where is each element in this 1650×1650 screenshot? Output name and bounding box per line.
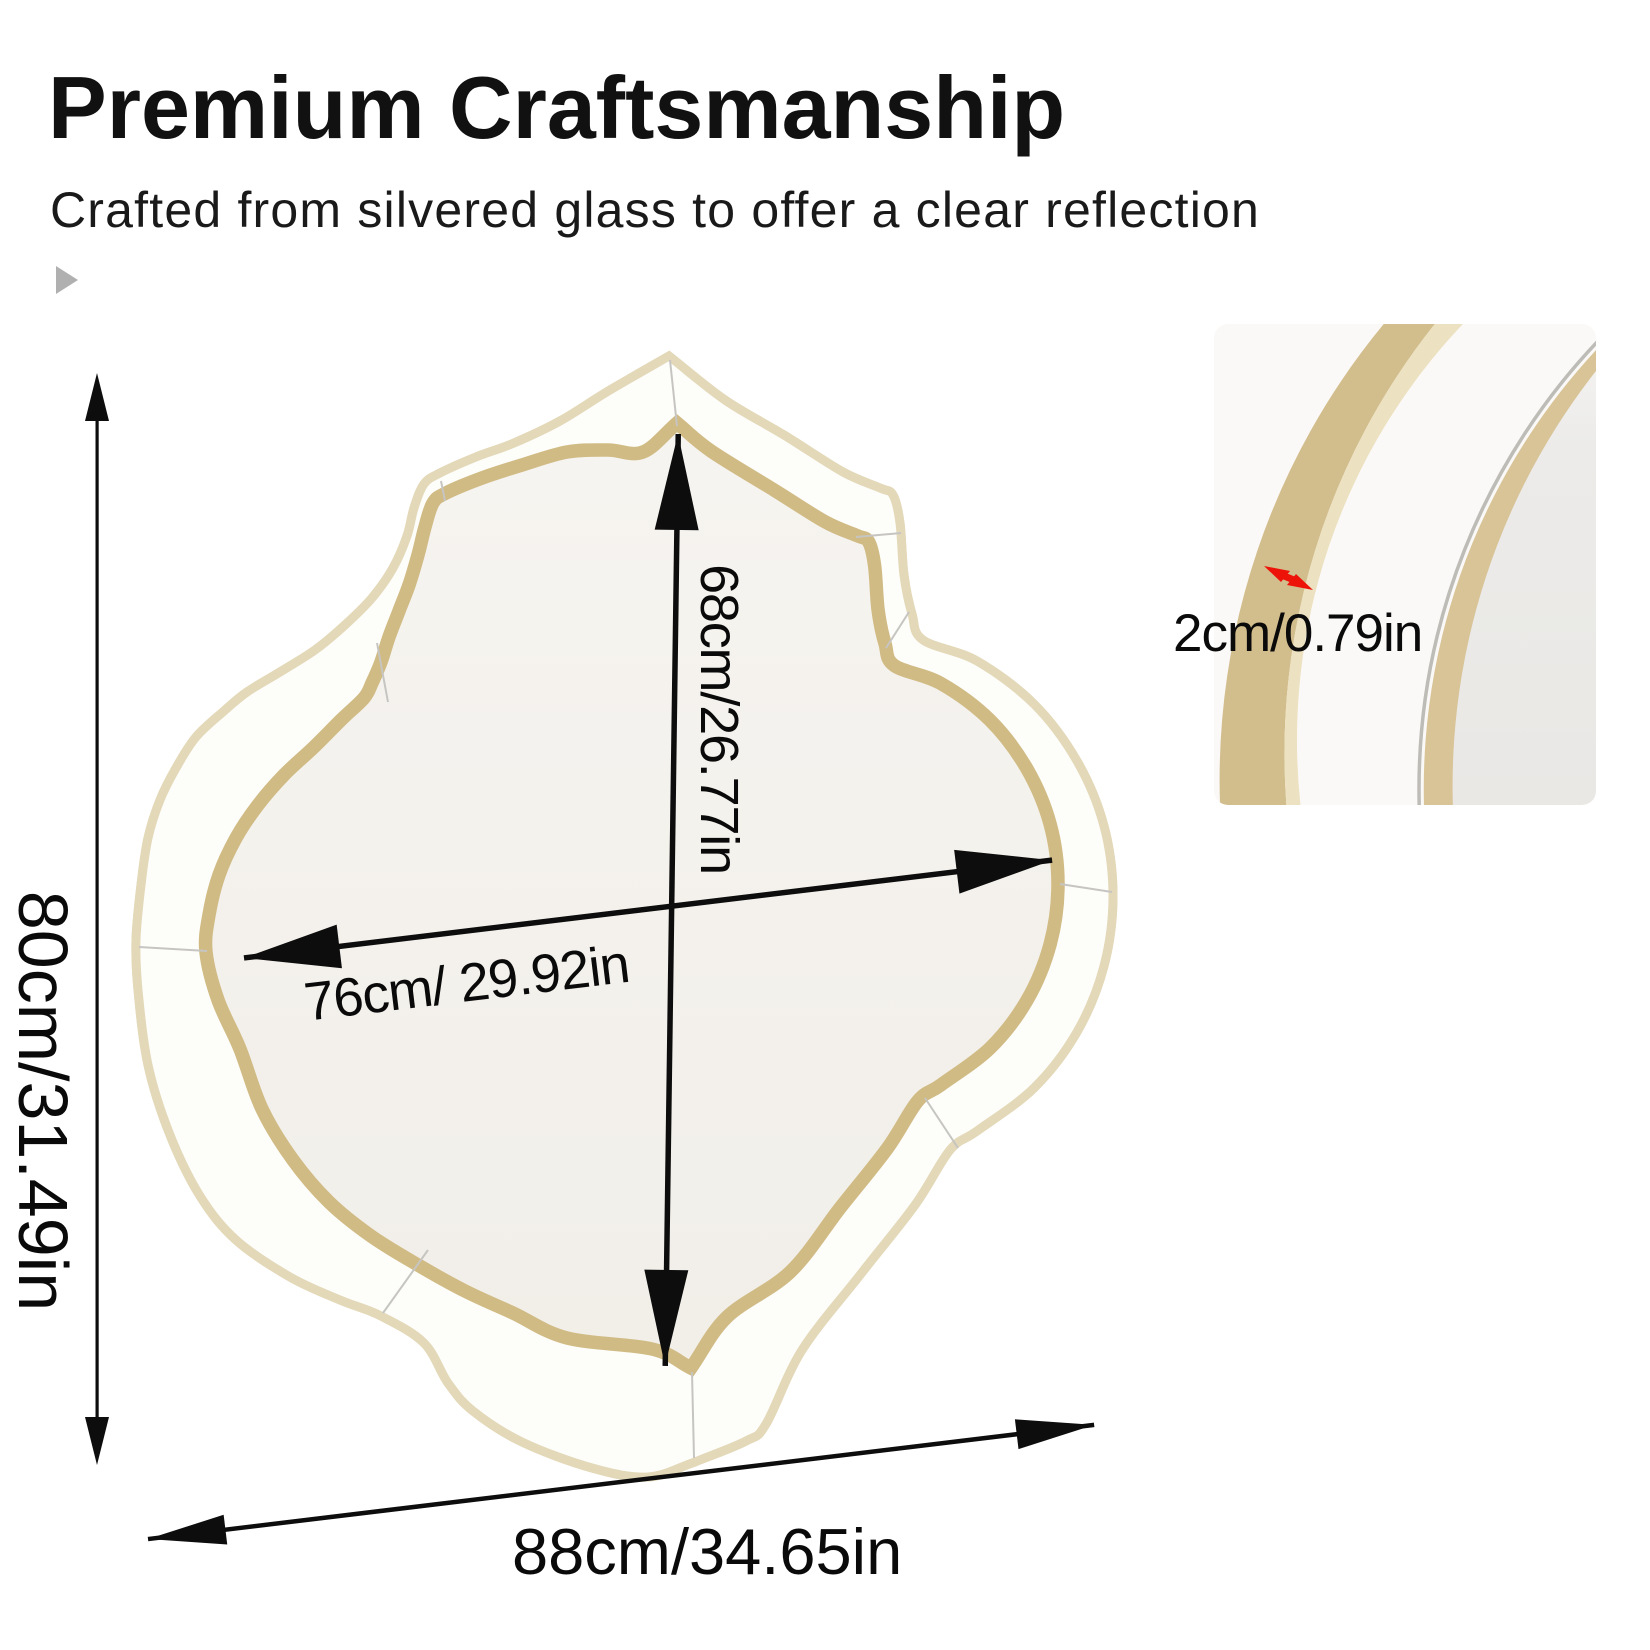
svg-text:80cm/31.49in: 80cm/31.49in bbox=[4, 891, 82, 1311]
svg-text:88cm/34.65in: 88cm/34.65in bbox=[512, 1515, 902, 1588]
svg-text:2cm/0.79in: 2cm/0.79in bbox=[1173, 604, 1422, 663]
svg-text:68cm/26.77in: 68cm/26.77in bbox=[689, 564, 749, 874]
